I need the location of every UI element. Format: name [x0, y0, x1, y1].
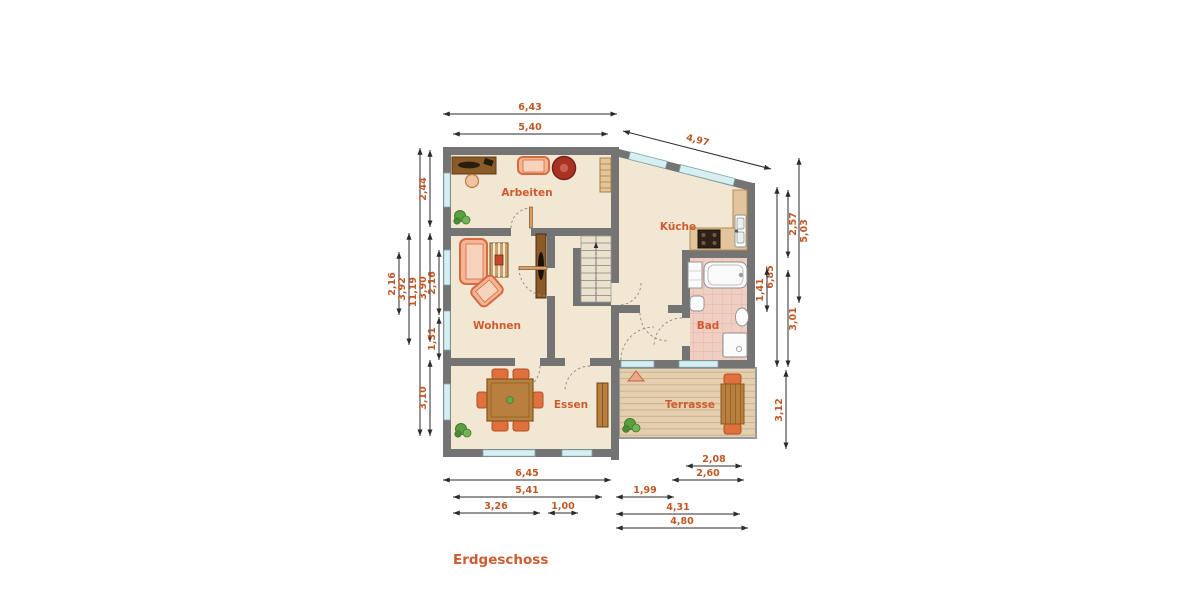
- toilet: [690, 296, 704, 311]
- room-label-arbeiten: Arbeiten: [501, 187, 552, 199]
- room-label-wohnen: Wohnen: [473, 320, 521, 332]
- dim-right-503: 5,03: [799, 219, 810, 242]
- dim-bottom-326: 3,26: [484, 501, 508, 512]
- dim-bottom-208: 2,08: [702, 454, 726, 465]
- terrasse-table: [721, 384, 744, 424]
- cabinet-item: [495, 255, 503, 265]
- dim-left-310: 3,10: [418, 386, 429, 410]
- dim-top-497: 4,97: [685, 132, 710, 148]
- wall-stairs-left: [573, 248, 581, 306]
- round-rug-center: [560, 164, 568, 172]
- door-leaf: [519, 267, 547, 270]
- bathtub-faucet: [739, 273, 743, 277]
- window-bad: [679, 361, 718, 367]
- desk-item: [458, 162, 480, 169]
- terrasse-chair: [724, 424, 741, 434]
- floorplan-svg: Arbeiten Küche Wohnen Bad Essen Terrasse…: [0, 0, 1200, 600]
- tall-bookcase-detail: [538, 252, 544, 280]
- window-arbeiten: [444, 173, 450, 207]
- dim-bottom-645: 6,45: [515, 468, 538, 479]
- dim-top-540: 5,40: [518, 122, 542, 133]
- window-wohnen-1: [444, 250, 450, 285]
- sofa-seat: [466, 244, 483, 279]
- wall-bad-top: [682, 250, 747, 258]
- stove: [698, 230, 720, 248]
- dim-bottom-480: 4,80: [670, 516, 694, 527]
- dim-right-257: 2,57: [788, 212, 799, 235]
- dim-bottom-260: 2,60: [696, 468, 720, 479]
- wall-top: [443, 147, 617, 155]
- room-label-essen: Essen: [554, 399, 588, 411]
- window-wohnen-2: [444, 311, 450, 350]
- armchair-seat: [523, 160, 544, 172]
- dim-bottom-199: 1,99: [633, 485, 656, 496]
- dim-left-392: 3,92: [397, 277, 408, 300]
- door-leaf: [529, 207, 532, 228]
- bath-cabinet: [688, 262, 702, 288]
- washbasin: [736, 308, 749, 326]
- window-essen-left: [444, 384, 450, 420]
- terrasse-table-set: [721, 374, 744, 434]
- table-centerpiece: [507, 397, 514, 404]
- wall-right: [747, 183, 755, 368]
- desk-chair: [466, 175, 479, 188]
- plan-title: Erdgeschoss: [453, 552, 548, 568]
- dim-bottom-100: 1,00: [551, 501, 575, 512]
- room-label-terrasse: Terrasse: [665, 399, 715, 411]
- room-label-kueche: Küche: [660, 221, 696, 233]
- terrasse-chair: [724, 374, 741, 384]
- dim-right-141: 1,41: [755, 278, 766, 301]
- dim-right-312: 3,12: [774, 398, 785, 421]
- door-terrasse: [621, 361, 654, 367]
- dim-left-131: 1,31: [427, 327, 438, 350]
- floorplan-page: Arbeiten Küche Wohnen Bad Essen Terrasse…: [0, 0, 1200, 600]
- dim-left-244: 2,44: [418, 177, 429, 201]
- wall-wohnen-hall: [547, 236, 555, 358]
- shower: [723, 333, 747, 357]
- window-essen-bottom-2: [562, 450, 592, 456]
- bookshelf: [600, 158, 611, 192]
- dim-bottom-431: 4,31: [666, 502, 689, 513]
- room-label-bad: Bad: [697, 320, 720, 332]
- window-essen-bottom-1: [483, 450, 535, 456]
- dim-left-216-inner: 2,16: [427, 271, 438, 295]
- dim-right-301: 3,01: [788, 307, 799, 330]
- stairs: [581, 236, 611, 302]
- dim-bottom-541: 5,41: [515, 485, 538, 496]
- dim-top-643: 6,43: [518, 102, 541, 113]
